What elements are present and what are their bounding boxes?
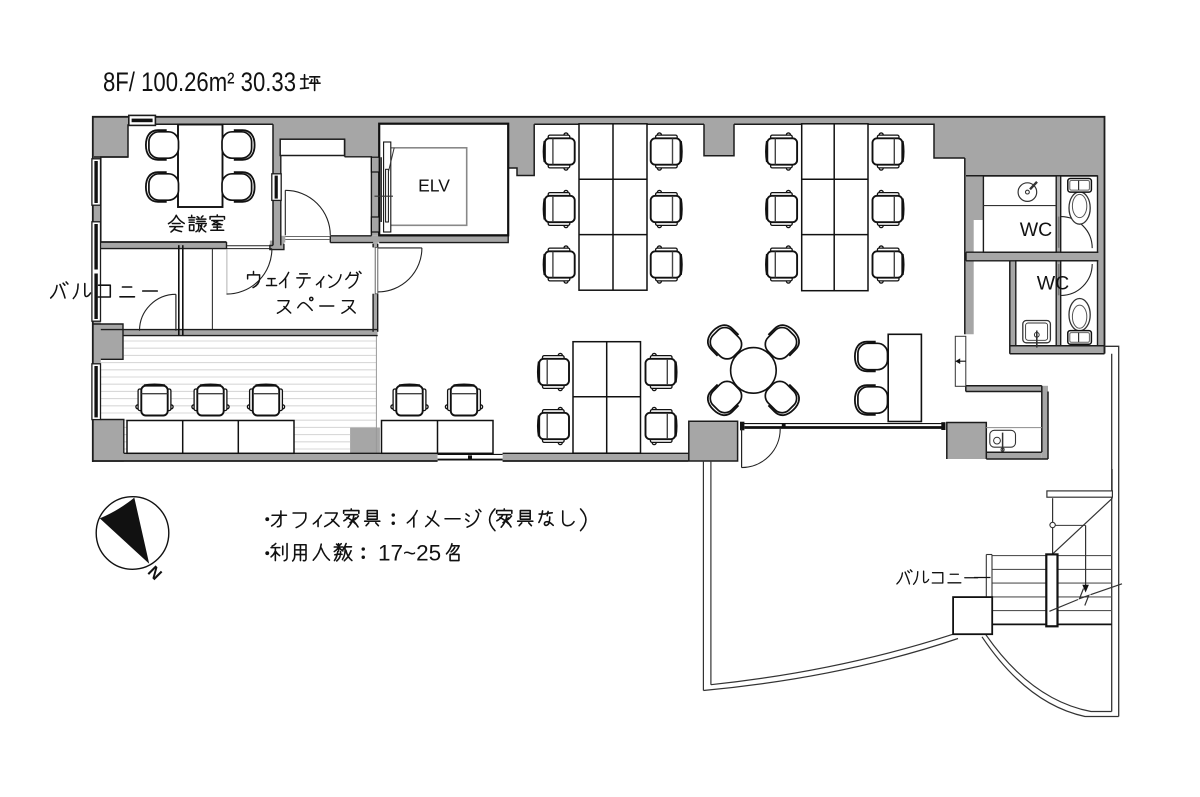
svg-text:ELV: ELV [418,176,450,196]
svg-text:17~25: 17~25 [378,541,441,566]
svg-text:WC: WC [1037,273,1070,295]
svg-text:WC: WC [1020,219,1053,241]
svg-text:8F/ 100.26m² 30.33: 8F/ 100.26m² 30.33 [103,67,296,97]
